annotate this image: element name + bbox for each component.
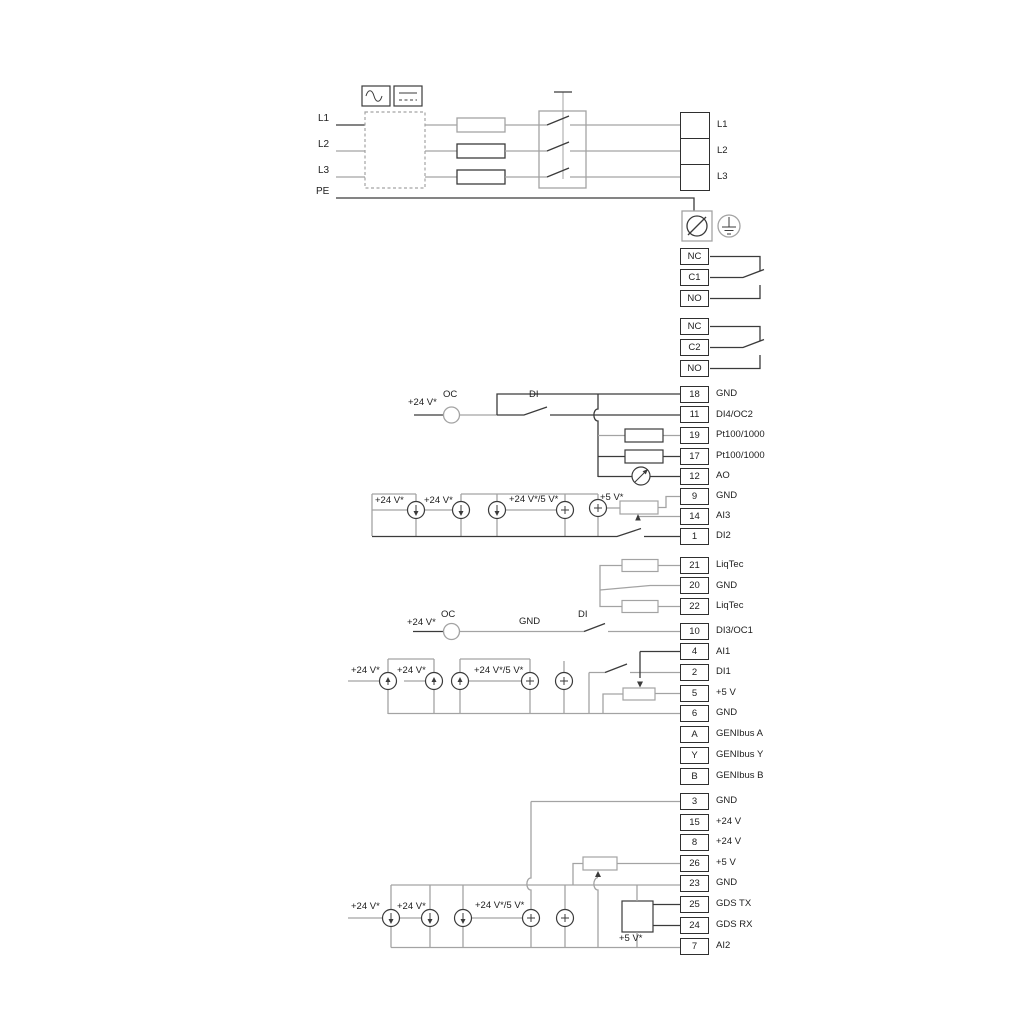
- mains-left-l1: L1: [318, 113, 329, 124]
- liqtec-sensor: [622, 560, 658, 572]
- terminal-label: GENIbus A: [716, 728, 763, 739]
- fuse-l3: [457, 170, 505, 184]
- supply-24v-label: +24 V*: [375, 495, 404, 506]
- terminal-label: GDS RX: [716, 919, 752, 930]
- terminal-2: 2: [680, 664, 709, 681]
- terminal-label-l1: L1: [717, 119, 728, 130]
- terminal-25: 25: [680, 896, 709, 913]
- terminal-11: 11: [680, 406, 709, 423]
- liqtec-sensor: [622, 601, 658, 613]
- terminal-label-l3: L3: [717, 171, 728, 182]
- di-label: DI: [578, 609, 588, 620]
- terminal-label: LiqTec: [716, 559, 743, 570]
- earth-ground-icon: [718, 215, 740, 237]
- terminal-label: Pt100/1000: [716, 450, 765, 461]
- terminal-4: 4: [680, 643, 709, 660]
- terminal-5: 5: [680, 685, 709, 702]
- terminal-label: AI1: [716, 646, 730, 657]
- terminal-label: DI1: [716, 666, 731, 677]
- terminal-label: GENIbus Y: [716, 749, 763, 760]
- gds-sensor-box: [622, 901, 653, 932]
- dc-symbol-icon: [394, 86, 422, 106]
- di-switch: [584, 624, 605, 632]
- terminal-label: GDS TX: [716, 898, 751, 909]
- supply-5v-label: +5 V*: [619, 933, 643, 944]
- liqtec-section: [600, 560, 680, 613]
- supply-24v-label: +24 V*: [397, 901, 426, 912]
- terminal-9: 9: [680, 488, 709, 505]
- terminal-label: LiqTec: [716, 600, 743, 611]
- di-switch: [497, 407, 547, 415]
- terminal-26: 26: [680, 855, 709, 872]
- terminal-label: GND: [716, 580, 737, 591]
- terminal-label: GND: [716, 877, 737, 888]
- pt100-sensor: [625, 450, 663, 463]
- terminal-12: 12: [680, 468, 709, 485]
- terminal-a: A: [680, 726, 709, 743]
- relay1-contact: [710, 257, 764, 299]
- terminal-l3: [680, 164, 710, 191]
- terminal-label: +5 V: [716, 687, 736, 698]
- terminal-23: 23: [680, 875, 709, 892]
- mains-wiring: [336, 86, 694, 211]
- terminal-label: DI2: [716, 530, 731, 541]
- gds-ai2-section: [348, 802, 680, 948]
- terminal-relay1-no: NO: [680, 290, 709, 307]
- terminal-relay1-c1: C1: [680, 269, 709, 286]
- terminal-label: DI3/OC1: [716, 625, 753, 636]
- terminal-21: 21: [680, 557, 709, 574]
- terminal-6: 6: [680, 705, 709, 722]
- terminal-label: +24 V: [716, 836, 741, 847]
- terminal-label: +5 V: [716, 857, 736, 868]
- potentiometer: [620, 501, 658, 514]
- terminal-3: 3: [680, 793, 709, 810]
- terminal-label: AI3: [716, 510, 730, 521]
- mains-left-pe: PE: [316, 186, 329, 197]
- pt100-sensor: [625, 429, 663, 442]
- terminal-10: 10: [680, 623, 709, 640]
- terminal-label: DI4/OC2: [716, 409, 753, 420]
- mains-left-l2: L2: [318, 139, 329, 150]
- supply-5v-label: +5 V*: [600, 492, 624, 503]
- main-disconnect-switch: [539, 92, 586, 188]
- terminal-8: 8: [680, 834, 709, 851]
- supply-24v-label: +24 V*: [407, 617, 436, 628]
- terminal-label: GENIbus B: [716, 770, 764, 781]
- supply-24v-label: +24 V*: [351, 665, 380, 676]
- di3-oc1-section: [413, 624, 680, 640]
- supply-24v-5v-label: +24 V*/5 V*: [509, 494, 558, 505]
- supply-24v-label: +24 V*: [408, 397, 437, 408]
- terminal-14: 14: [680, 508, 709, 525]
- terminal-relay2-c2: C2: [680, 339, 709, 356]
- terminal-label: +24 V: [716, 816, 741, 827]
- terminal-label: AI2: [716, 940, 730, 951]
- wiring-diagram-svg: [0, 0, 1024, 1024]
- ac-symbol-icon: [362, 86, 390, 106]
- terminal-l1: [680, 112, 710, 139]
- gnd-label: GND: [519, 616, 540, 627]
- terminal-19: 19: [680, 427, 709, 444]
- terminal-1: 1: [680, 528, 709, 545]
- terminal-label: Pt100/1000: [716, 429, 765, 440]
- terminal-label-l2: L2: [717, 145, 728, 156]
- terminal-y: Y: [680, 747, 709, 764]
- terminal-17: 17: [680, 448, 709, 465]
- ao-meter-icon: [632, 467, 650, 485]
- supply-24v-5v-label: +24 V*/5 V*: [475, 900, 524, 911]
- potentiometer: [623, 688, 655, 700]
- terminal-15: 15: [680, 814, 709, 831]
- terminal-label: AO: [716, 470, 730, 481]
- terminal-label: GND: [716, 388, 737, 399]
- supply-24v-label: +24 V*: [397, 665, 426, 676]
- terminal-relay1-nc: NC: [680, 248, 709, 265]
- wiring-diagram-page: L1 L2 L3 PE L1 L2 L3 NC C1 NO NC C2 NO 1…: [0, 0, 1024, 1024]
- relay2-contact: [710, 327, 764, 369]
- terminal-relay2-no: NO: [680, 360, 709, 377]
- ai1-di1-section: [348, 652, 680, 715]
- open-collector-icon: [444, 407, 460, 423]
- fuse-l2: [457, 144, 505, 158]
- open-collector-icon: [444, 624, 460, 640]
- oc-label: OC: [441, 609, 455, 620]
- terminal-22: 22: [680, 598, 709, 615]
- terminal-20: 20: [680, 577, 709, 594]
- screw-terminal-icon: [682, 211, 712, 241]
- terminal-relay2-nc: NC: [680, 318, 709, 335]
- terminal-label: GND: [716, 707, 737, 718]
- di4-oc2-section: [414, 394, 680, 485]
- supply-24v-label: +24 V*: [351, 901, 380, 912]
- rfi-filter-box: [365, 112, 425, 188]
- mains-left-l3: L3: [318, 165, 329, 176]
- oc-label: OC: [443, 389, 457, 400]
- di-label: DI: [529, 389, 539, 400]
- terminal-label: GND: [716, 490, 737, 501]
- terminal-18: 18: [680, 386, 709, 403]
- potentiometer: [583, 857, 617, 870]
- supply-24v-5v-label: +24 V*/5 V*: [474, 665, 523, 676]
- terminal-label: GND: [716, 795, 737, 806]
- terminal-l2: [680, 138, 710, 165]
- fuse-l1: [457, 118, 505, 132]
- terminal-b: B: [680, 768, 709, 785]
- terminal-24: 24: [680, 917, 709, 934]
- terminal-7: 7: [680, 938, 709, 955]
- supply-24v-label: +24 V*: [424, 495, 453, 506]
- di-switch: [605, 664, 627, 673]
